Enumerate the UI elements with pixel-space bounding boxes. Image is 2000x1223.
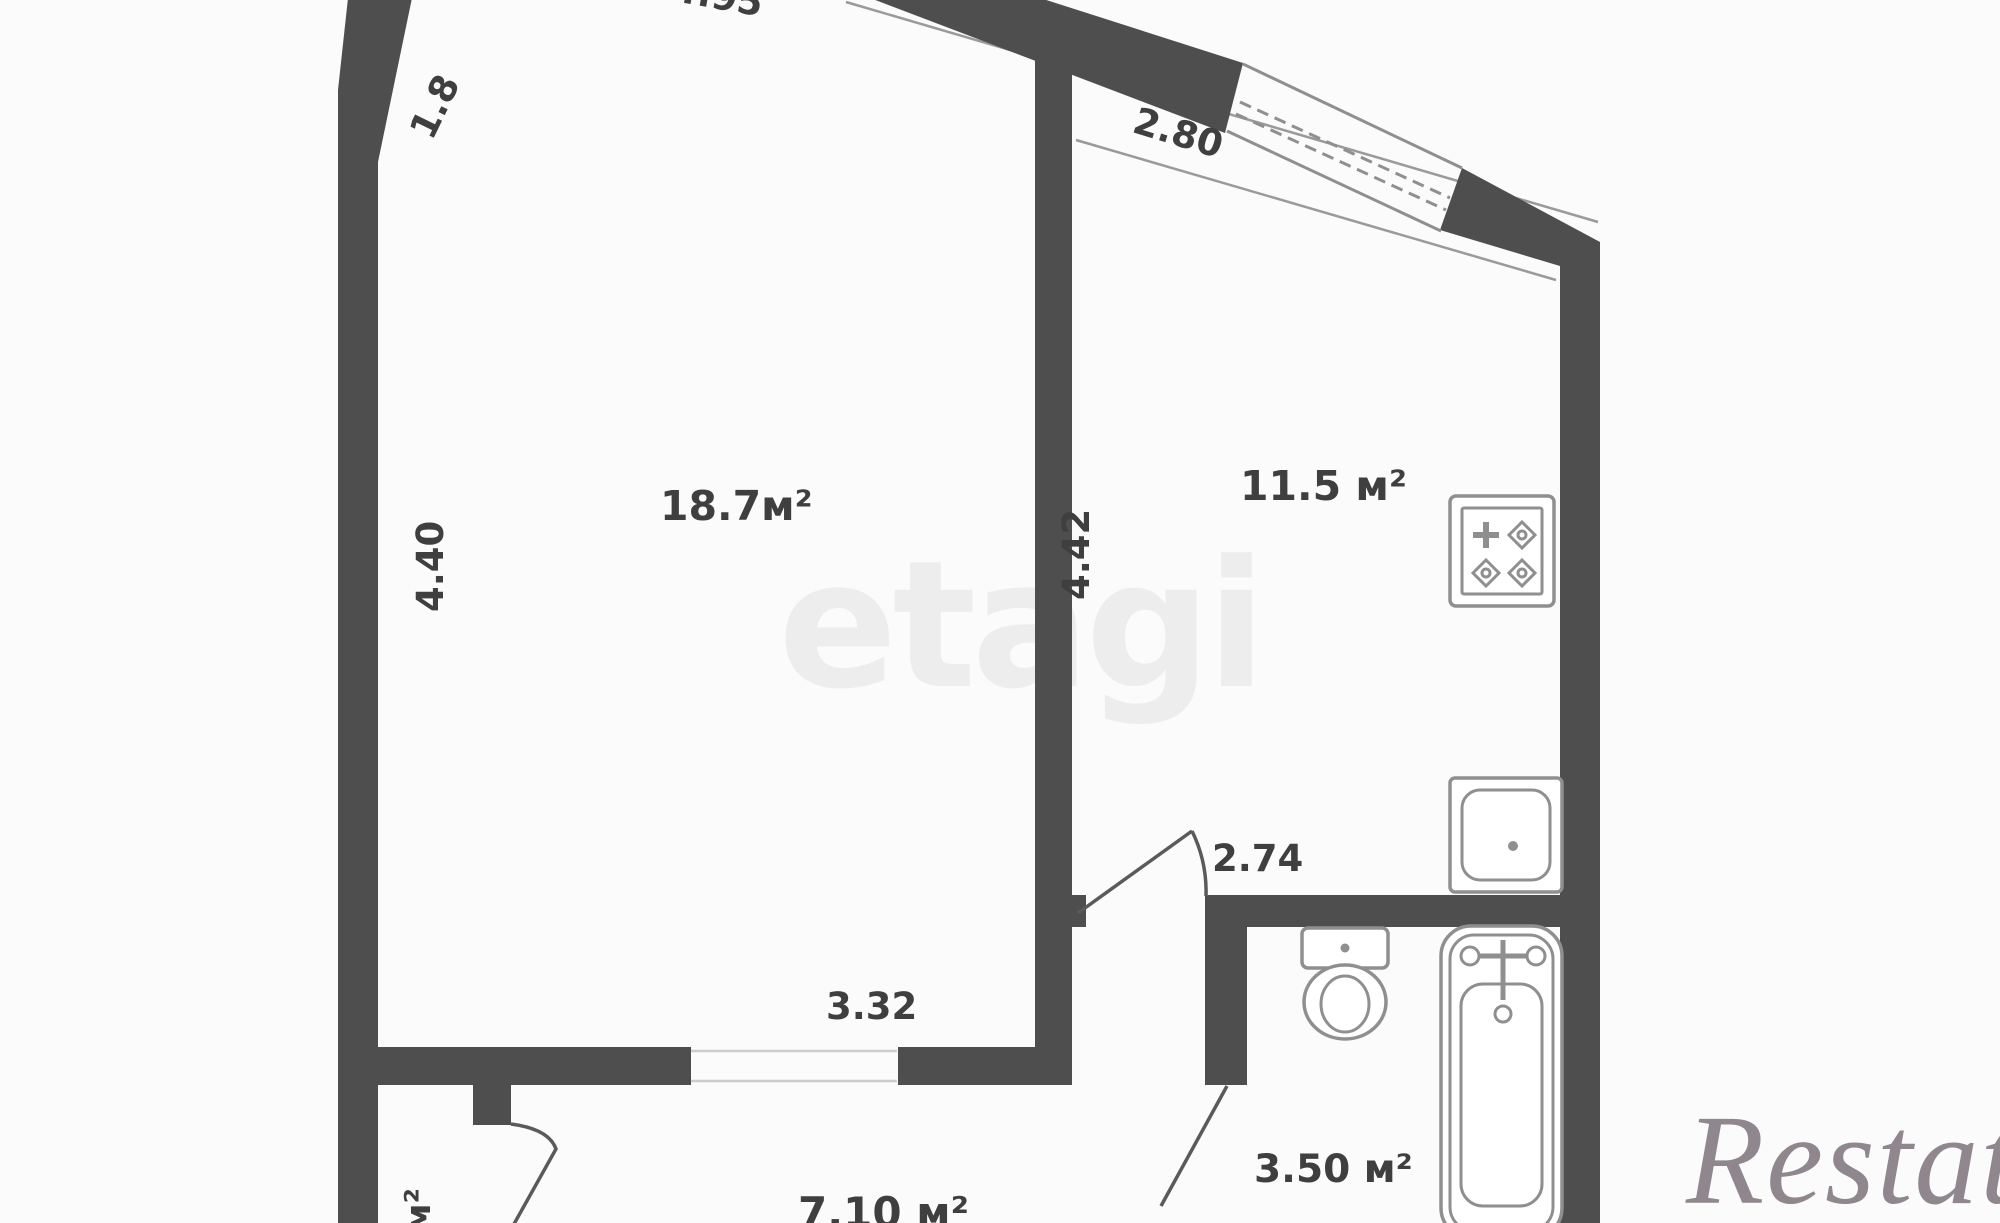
- kitchen-area-label: 11.5 м²: [1240, 466, 1407, 507]
- dim-kitchen-doorway: 2.74: [1212, 840, 1303, 877]
- kitchen-bathroom-wall: [1205, 895, 1600, 927]
- toilet-icon: [1302, 928, 1388, 1039]
- floor-plan: etagi: [0, 0, 2000, 1223]
- closet-wall-stub: [473, 1085, 511, 1125]
- living-bottom-wall-right: [898, 1047, 1072, 1085]
- hallway-area-label: 7.10 м²: [798, 1192, 969, 1223]
- kitchen-door-arc: [1192, 831, 1206, 896]
- bathtub-icon: [1441, 926, 1562, 1223]
- bathroom-area-label: 3.50 м²: [1254, 1150, 1413, 1189]
- restate-watermark: Restate: [1686, 1096, 2000, 1223]
- closet-door-leaf: [511, 1124, 556, 1223]
- left-wall: [338, 0, 412, 1223]
- window-glass-line-1: [1240, 102, 1450, 198]
- dim-living-opening: 3.32: [826, 988, 917, 1025]
- stove-icon: [1450, 496, 1554, 606]
- kitchen-door-leaf: [1078, 831, 1192, 913]
- living-bottom-wall-left: [338, 1047, 691, 1085]
- kitchen-sink-icon: [1450, 778, 1562, 892]
- closet-area-label-partial: м²: [402, 1188, 437, 1223]
- bathroom-door-leaf: [1161, 1086, 1227, 1206]
- living-room-area-label: 18.7м²: [660, 486, 813, 527]
- bathroom-left-wall: [1205, 927, 1247, 1085]
- dim-kitchen-wall: 4.42: [1058, 509, 1095, 600]
- floor-plan-geometry: [0, 0, 2000, 1223]
- dim-left-wall: 4.40: [412, 521, 449, 612]
